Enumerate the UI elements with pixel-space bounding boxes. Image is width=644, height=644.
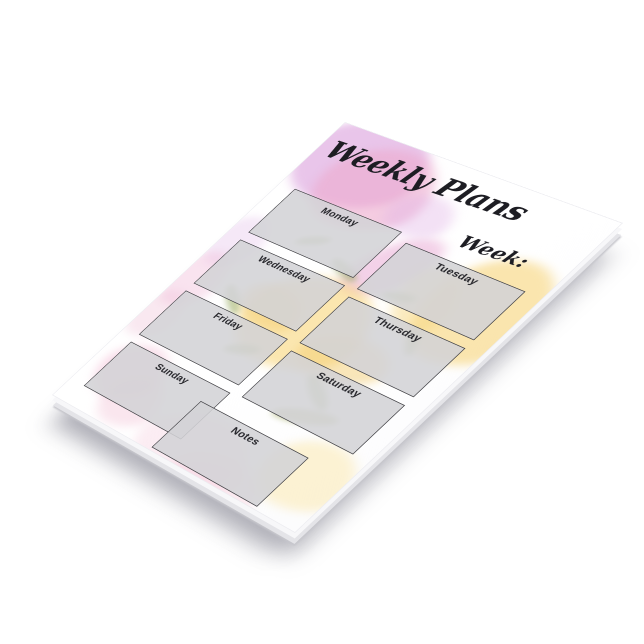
weekly-planner-notepad: Weekly Plans Week: Monday Tuesday Wednes… xyxy=(52,122,623,533)
day-box-label: Wednesday xyxy=(255,254,314,284)
day-box-label: Sunday xyxy=(152,361,192,386)
product-photo-stage: Weekly Plans Week: Monday Tuesday Wednes… xyxy=(0,0,644,644)
day-box-label: Tuesday xyxy=(432,261,482,287)
notes-box-label: Notes xyxy=(228,425,263,448)
